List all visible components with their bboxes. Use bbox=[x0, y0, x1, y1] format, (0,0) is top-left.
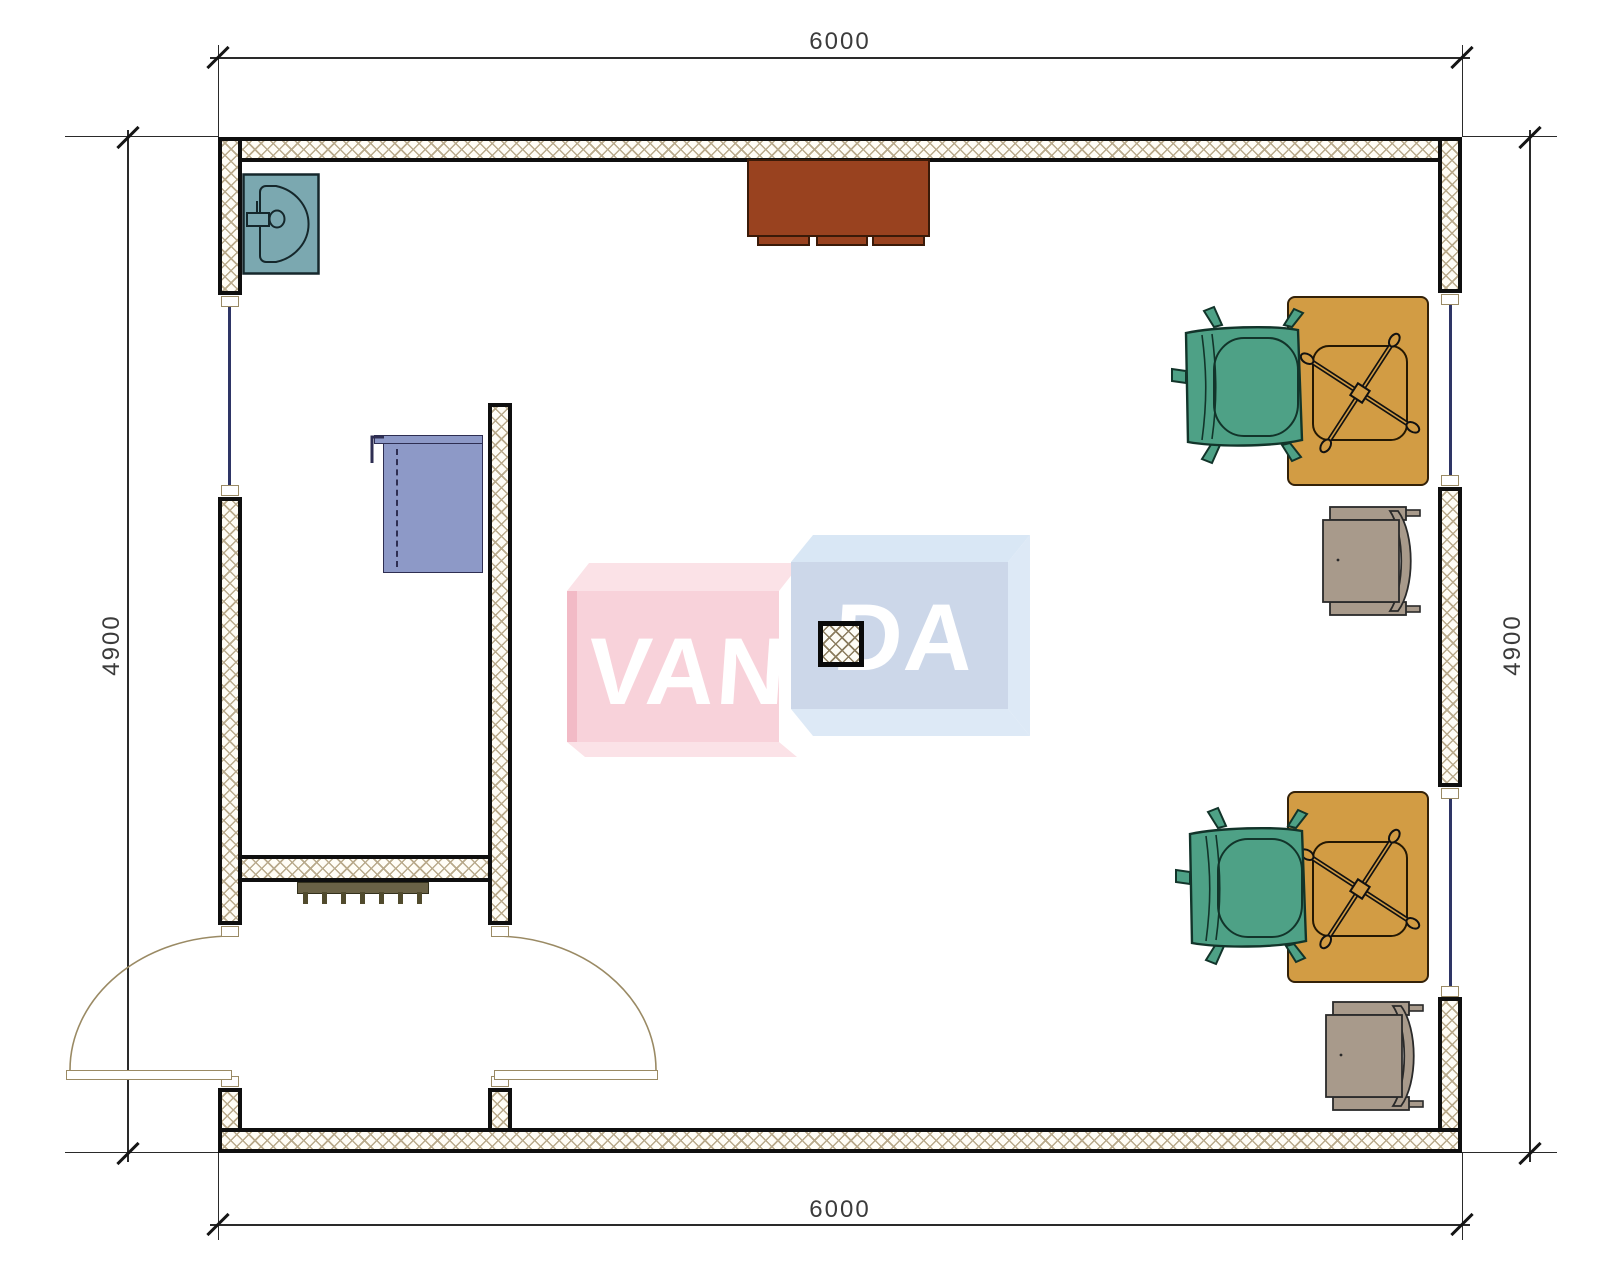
logo-pink-top-face bbox=[567, 563, 801, 591]
logo-blue-top-face bbox=[791, 535, 1030, 562]
dimension-label-right: 4900 bbox=[1500, 590, 1526, 700]
dimension-label-left: 4900 bbox=[99, 590, 125, 700]
window-right-lower bbox=[1449, 799, 1452, 986]
dimension-label-top: 6000 bbox=[785, 29, 895, 55]
extension-line bbox=[1462, 1152, 1557, 1153]
cabinet-drawer bbox=[816, 237, 868, 246]
logo-blue-right-face bbox=[1008, 535, 1030, 736]
wall-end-cap bbox=[1441, 475, 1459, 486]
dimension-line-bottom bbox=[210, 1224, 1470, 1226]
wall-end-cap bbox=[221, 485, 239, 496]
logo-text-van: VAN bbox=[585, 625, 791, 720]
wall-end-cap bbox=[221, 296, 239, 307]
vanda-watermark: VAN DA bbox=[556, 525, 1056, 760]
cabinet bbox=[747, 159, 930, 237]
armchair-2 bbox=[1174, 806, 1316, 966]
radiator-fins bbox=[303, 892, 425, 904]
door-right-leaf bbox=[494, 1070, 658, 1080]
window-left bbox=[228, 307, 231, 485]
wall-end-cap bbox=[1441, 788, 1459, 799]
floor-plan: VAN DA 6000 6000 4900 4900 bbox=[0, 0, 1600, 1280]
door-right-arc bbox=[494, 936, 656, 1070]
dimension-label-bottom: 6000 bbox=[785, 1197, 895, 1223]
armchair-1 bbox=[1170, 305, 1312, 465]
wall-right-upper bbox=[1438, 137, 1462, 293]
logo-blue-bottom-face bbox=[791, 709, 1030, 736]
wall-pier-left bbox=[218, 1088, 242, 1132]
side-chair-1 bbox=[1322, 506, 1426, 616]
counter-dashed-edge bbox=[396, 449, 398, 567]
cabinet-drawer bbox=[757, 237, 810, 246]
column bbox=[818, 621, 864, 667]
door-left-arc bbox=[70, 936, 232, 1070]
wall-end-cap bbox=[1441, 986, 1459, 997]
counter-hook bbox=[370, 435, 386, 465]
wall-end-cap bbox=[221, 926, 239, 937]
wall-left-middle bbox=[218, 497, 242, 925]
extension-line bbox=[218, 1153, 219, 1240]
door-left-leaf bbox=[66, 1070, 232, 1080]
dimension-line-top bbox=[210, 57, 1470, 59]
wall-end-cap bbox=[1441, 294, 1459, 305]
wall-end-cap bbox=[491, 926, 509, 937]
extension-line bbox=[1462, 136, 1557, 137]
logo-pink-bottom-face bbox=[567, 742, 797, 757]
extension-line bbox=[65, 136, 218, 137]
wall-left-upper bbox=[218, 137, 242, 295]
extension-line bbox=[1462, 1153, 1463, 1240]
extension-line bbox=[65, 1152, 218, 1153]
wall-interior-vertical bbox=[488, 403, 512, 925]
wall-bottom bbox=[218, 1128, 1462, 1153]
wall-interior-horizontal bbox=[242, 855, 488, 882]
window-right-upper bbox=[1449, 305, 1452, 475]
dimension-line-left bbox=[127, 130, 129, 1162]
side-chair-2 bbox=[1325, 1001, 1429, 1111]
wall-right-middle bbox=[1438, 487, 1462, 787]
cabinet-drawer bbox=[872, 237, 925, 246]
counter bbox=[383, 443, 483, 573]
wall-pier-right bbox=[488, 1088, 512, 1132]
sink bbox=[242, 173, 320, 275]
dimension-line-right bbox=[1529, 130, 1531, 1162]
